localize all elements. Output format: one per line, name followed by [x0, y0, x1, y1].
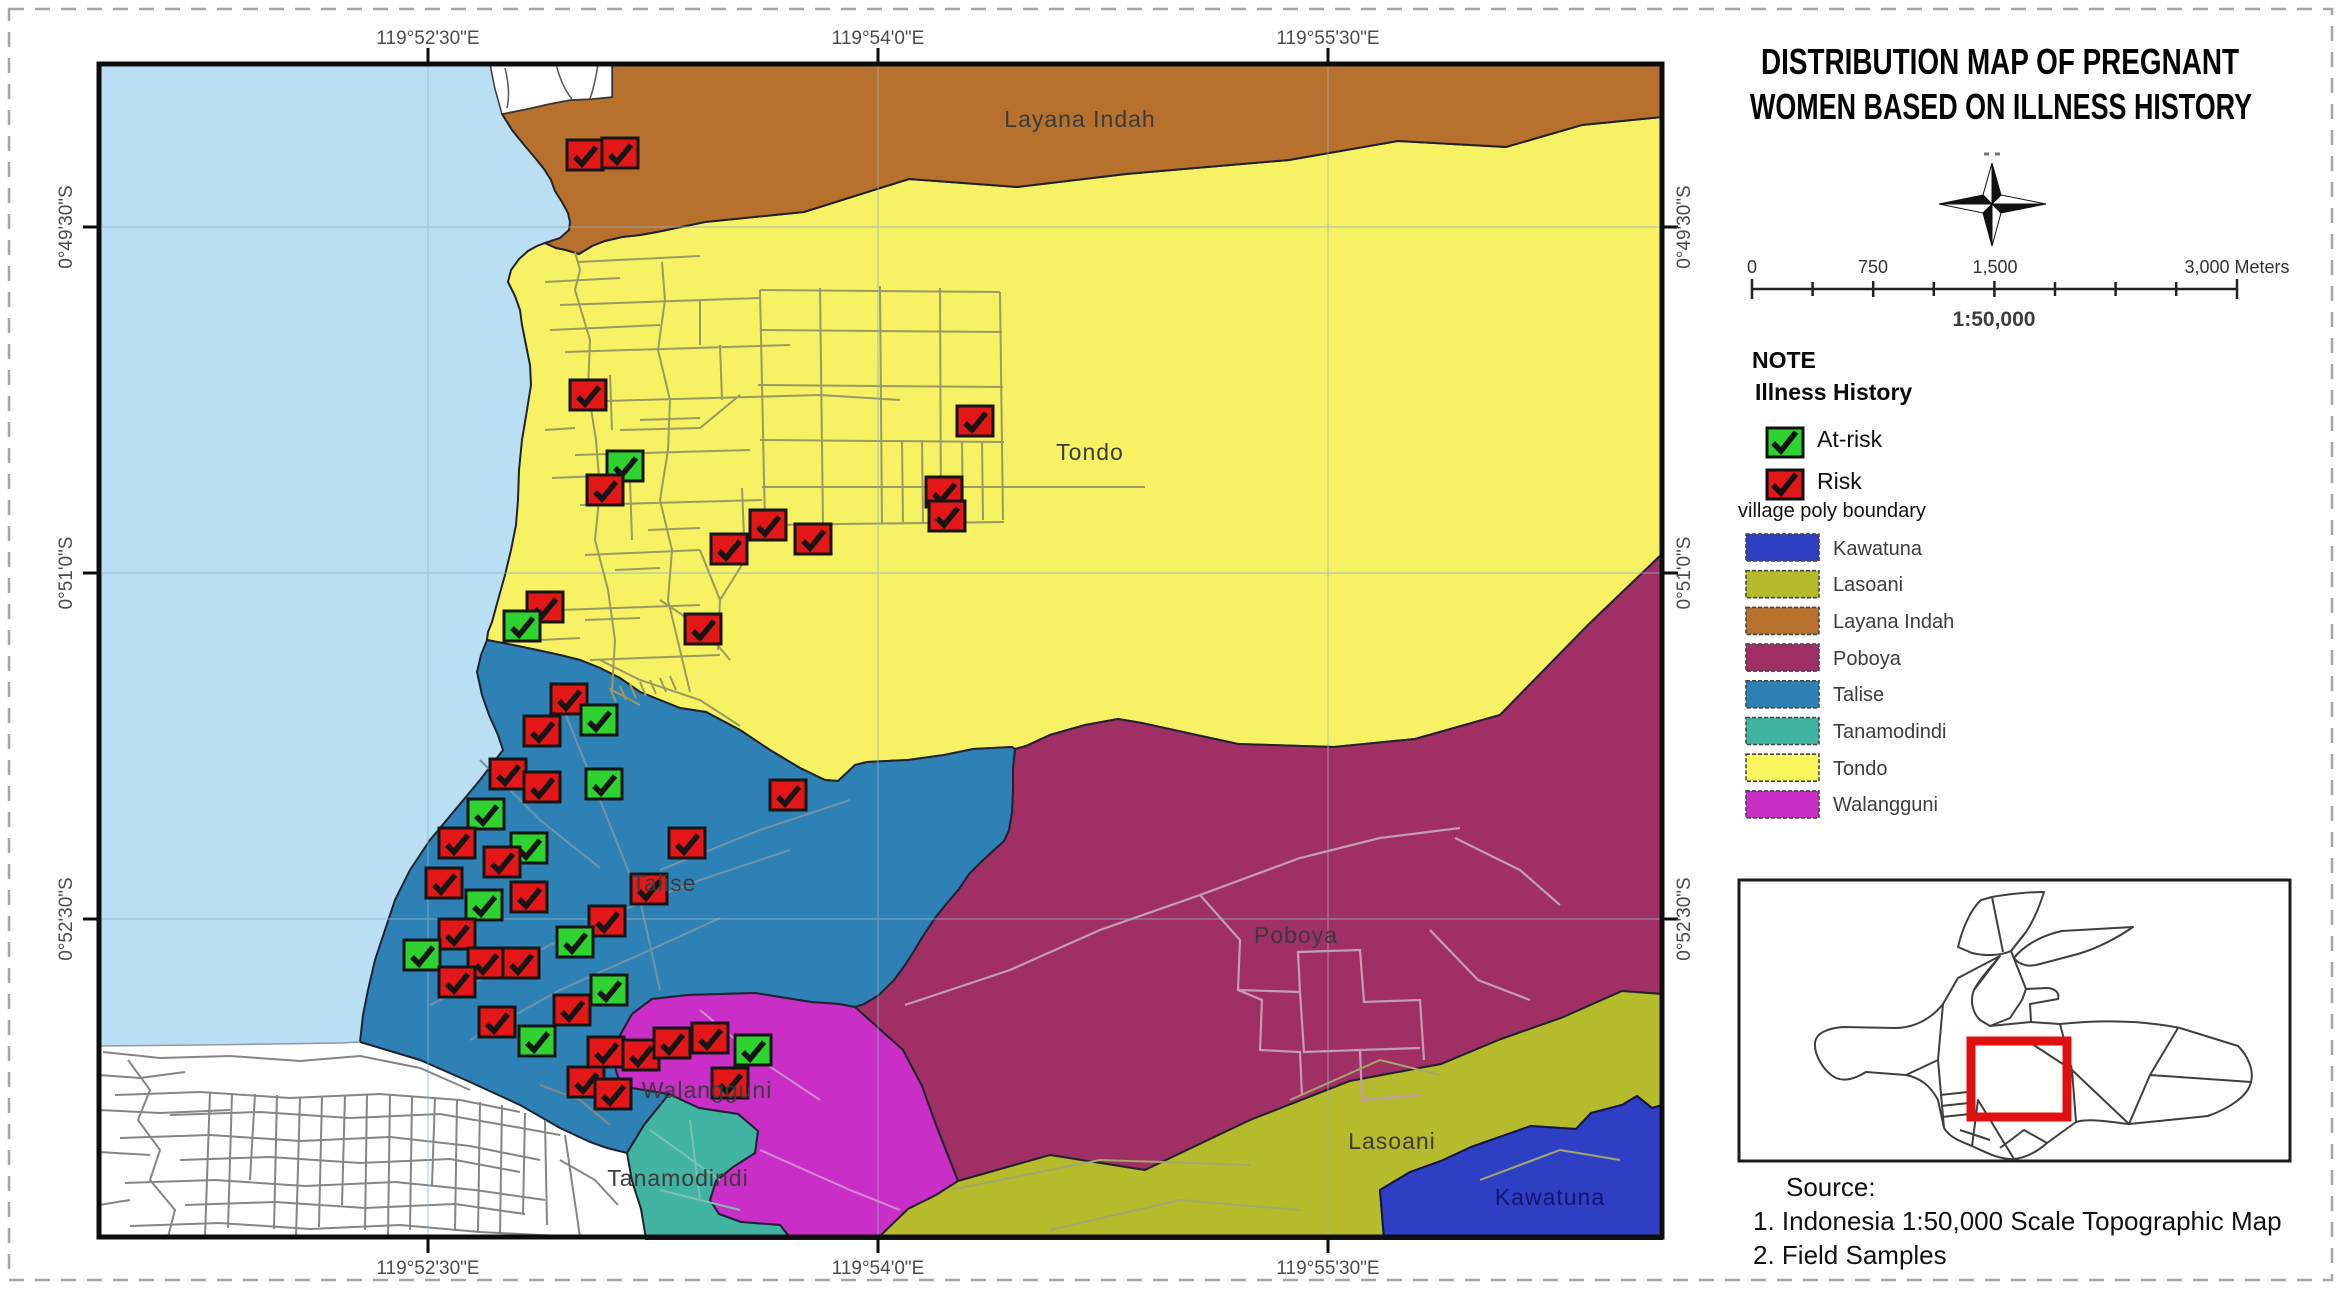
svg-text:750: 750 — [1858, 257, 1888, 277]
svg-text:3,000 Meters: 3,000 Meters — [2184, 257, 2289, 277]
svg-text:Talise: Talise — [1833, 684, 1884, 706]
svg-text:1,500: 1,500 — [1972, 257, 2017, 277]
svg-text:village poly boundary: village poly boundary — [1738, 500, 1926, 522]
svg-text:NOTE: NOTE — [1752, 347, 1816, 373]
svg-text:2. Field Samples: 2. Field Samples — [1753, 1240, 1947, 1270]
svg-text:119°55'30"E: 119°55'30"E — [1276, 1258, 1379, 1279]
svg-text:Talise: Talise — [632, 870, 697, 896]
svg-text:Layana Indah: Layana Indah — [1833, 611, 1954, 633]
svg-text:Source:: Source: — [1786, 1172, 1876, 1202]
svg-text:Lasoani: Lasoani — [1348, 1128, 1436, 1154]
svg-text:Tanamodindi: Tanamodindi — [1833, 721, 1946, 743]
svg-text:Lasoani: Lasoani — [1833, 574, 1903, 596]
svg-text:DISTRIBUTION MAP OF PREGNANT: DISTRIBUTION MAP OF PREGNANT — [1761, 41, 2239, 82]
svg-text:WOMEN BASED ON ILLNESS HISTORY: WOMEN BASED ON ILLNESS HISTORY — [1750, 86, 2252, 127]
svg-text:Tanamodindi: Tanamodindi — [607, 1165, 748, 1191]
svg-text:0°49'30"S: 0°49'30"S — [56, 185, 77, 268]
svg-text:0°52'30"S: 0°52'30"S — [56, 877, 77, 960]
svg-text:Poboya: Poboya — [1254, 922, 1338, 948]
svg-text:119°52'30"E: 119°52'30"E — [376, 28, 479, 49]
svg-text:Risk: Risk — [1817, 468, 1862, 494]
svg-text:At-risk: At-risk — [1817, 426, 1883, 452]
svg-text:Tondo: Tondo — [1833, 758, 1888, 780]
svg-text:Tondo: Tondo — [1056, 439, 1124, 465]
svg-text:0: 0 — [1747, 257, 1757, 277]
svg-text:0°49'30"S: 0°49'30"S — [1674, 185, 1695, 268]
svg-text:Layana Indah: Layana Indah — [1004, 106, 1155, 132]
svg-text:0°51'0"S: 0°51'0"S — [56, 537, 77, 610]
svg-text:0°51'0"S: 0°51'0"S — [1674, 537, 1695, 610]
svg-text:119°54'0"E: 119°54'0"E — [832, 28, 925, 49]
svg-text:Walangguni: Walangguni — [1833, 794, 1938, 816]
svg-text:119°54'0"E: 119°54'0"E — [832, 1258, 925, 1279]
svg-text:Kawatuna: Kawatuna — [1833, 538, 1923, 560]
svg-text:119°52'30"E: 119°52'30"E — [376, 1258, 479, 1279]
svg-text:1. Indonesia 1:50,000 Scale To: 1. Indonesia 1:50,000 Scale Topographic … — [1753, 1206, 2282, 1236]
svg-text:Poboya: Poboya — [1833, 648, 1902, 670]
svg-text:Kawatuna: Kawatuna — [1495, 1184, 1605, 1210]
svg-text:1:50,000: 1:50,000 — [1953, 308, 2036, 331]
svg-text:Illness History: Illness History — [1755, 379, 1912, 405]
svg-text:Walangguni: Walangguni — [642, 1077, 773, 1103]
svg-text:0°52'30"S: 0°52'30"S — [1674, 877, 1695, 960]
svg-text:119°55'30"E: 119°55'30"E — [1276, 28, 1379, 49]
